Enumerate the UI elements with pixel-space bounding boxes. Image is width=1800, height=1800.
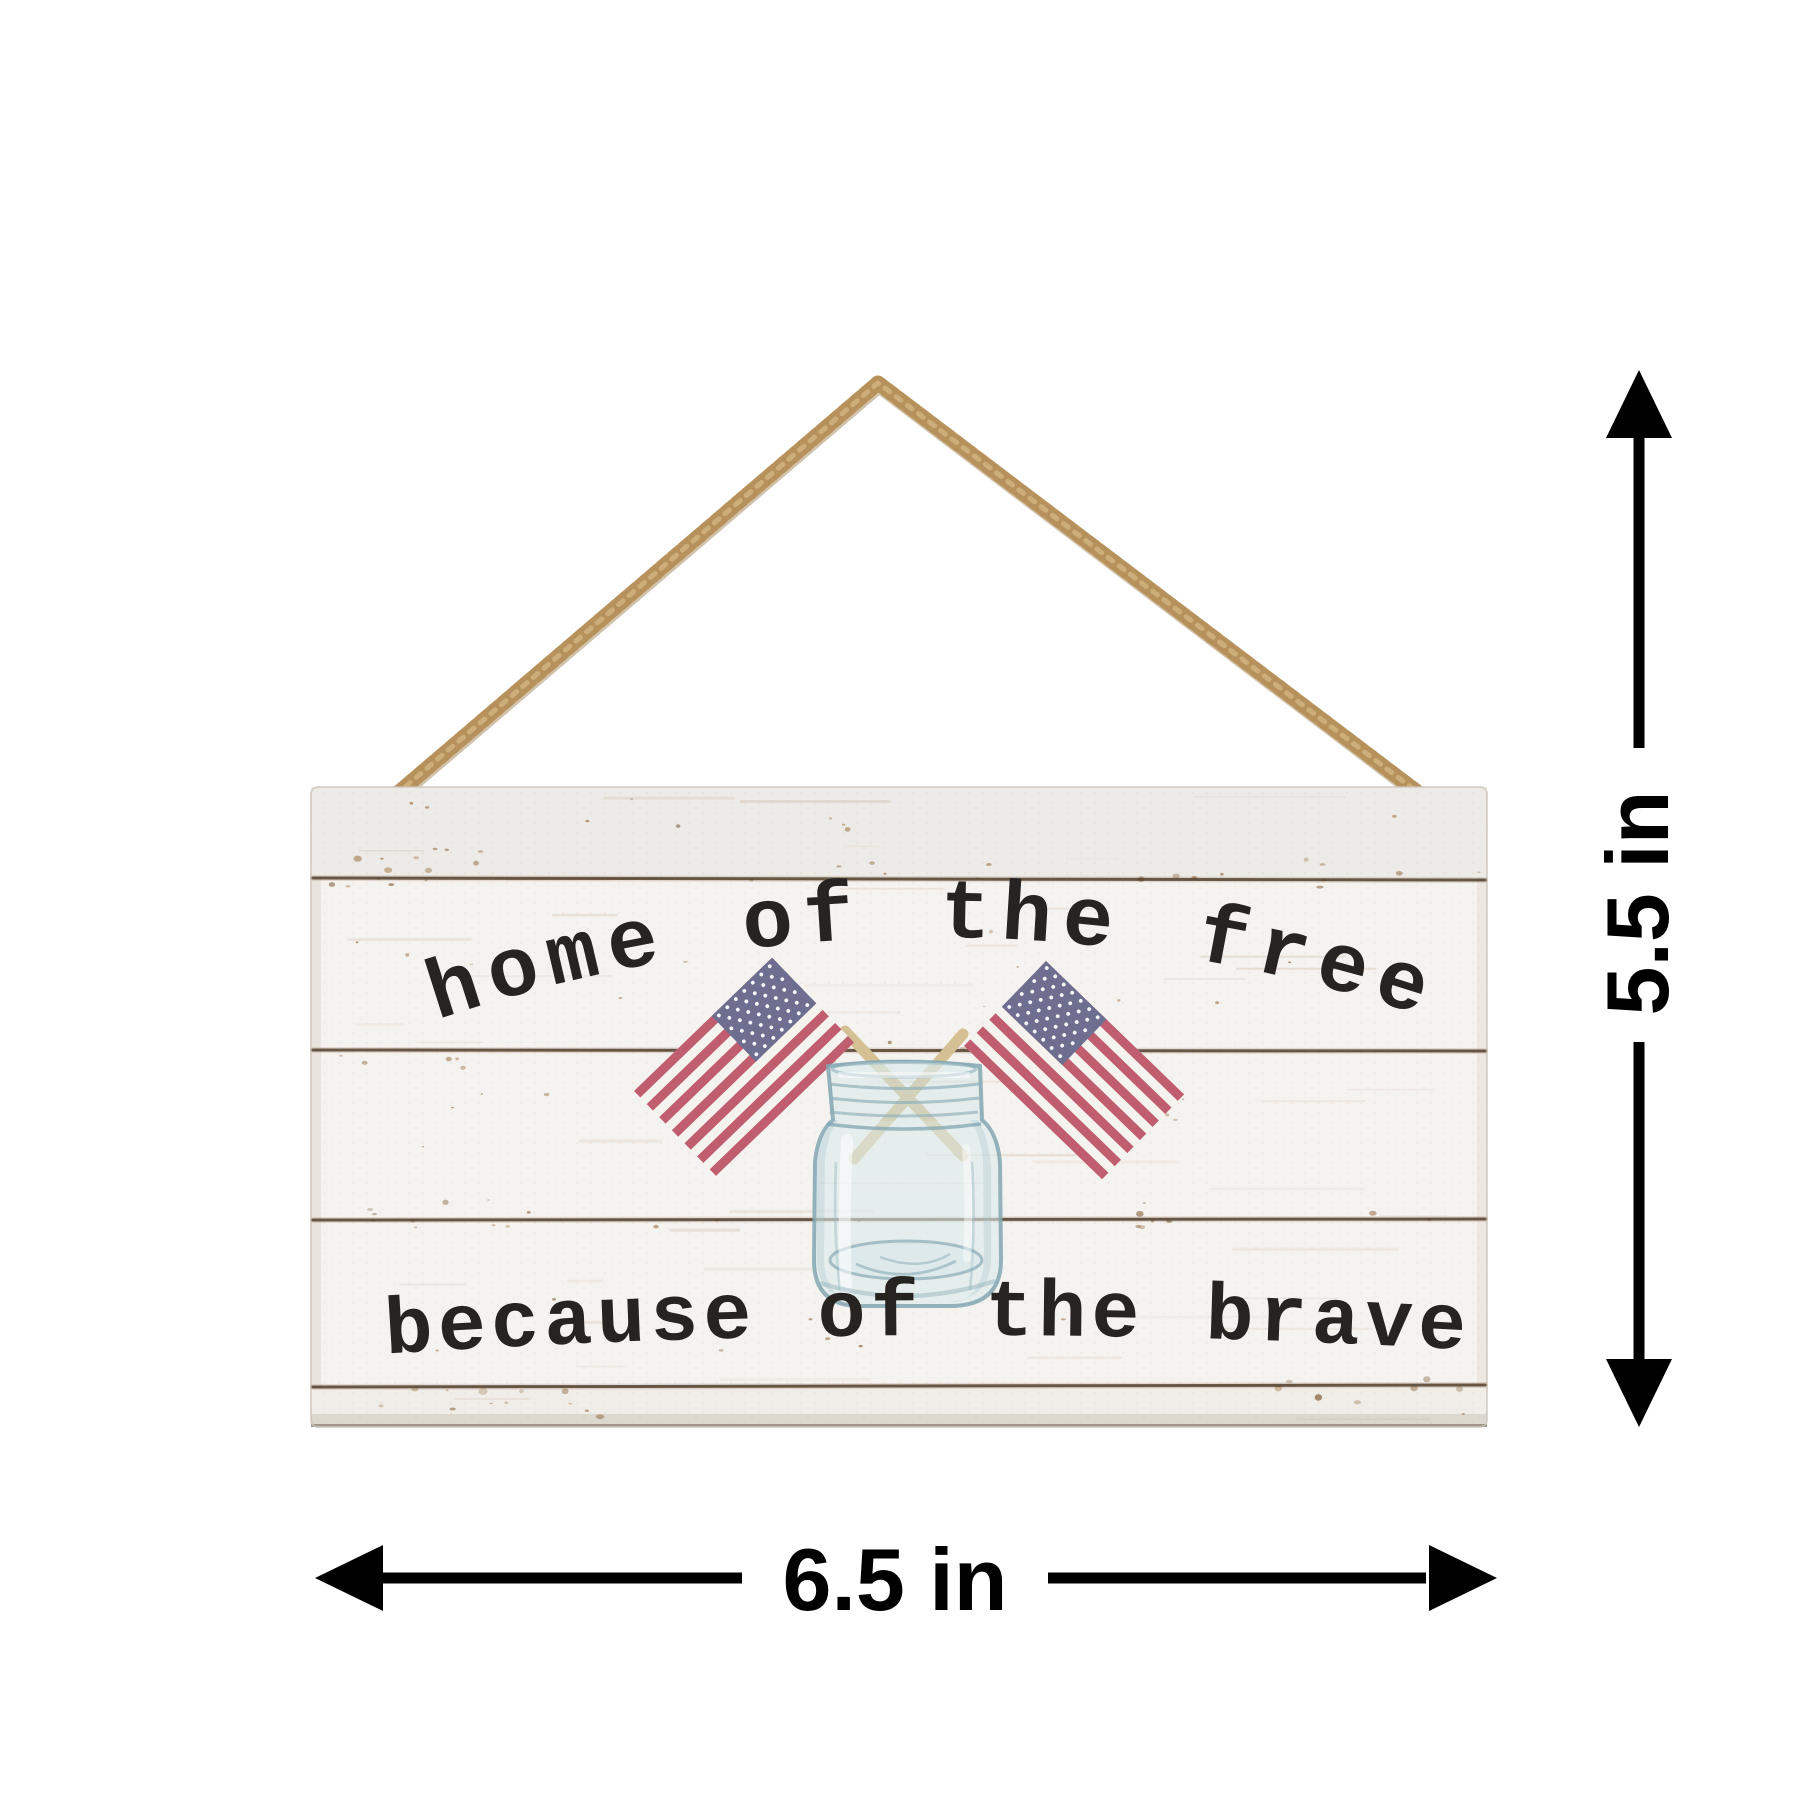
- svg-text:6.5 in: 6.5 in: [783, 1530, 1008, 1629]
- svg-text:5.5 in: 5.5 in: [1588, 791, 1687, 1016]
